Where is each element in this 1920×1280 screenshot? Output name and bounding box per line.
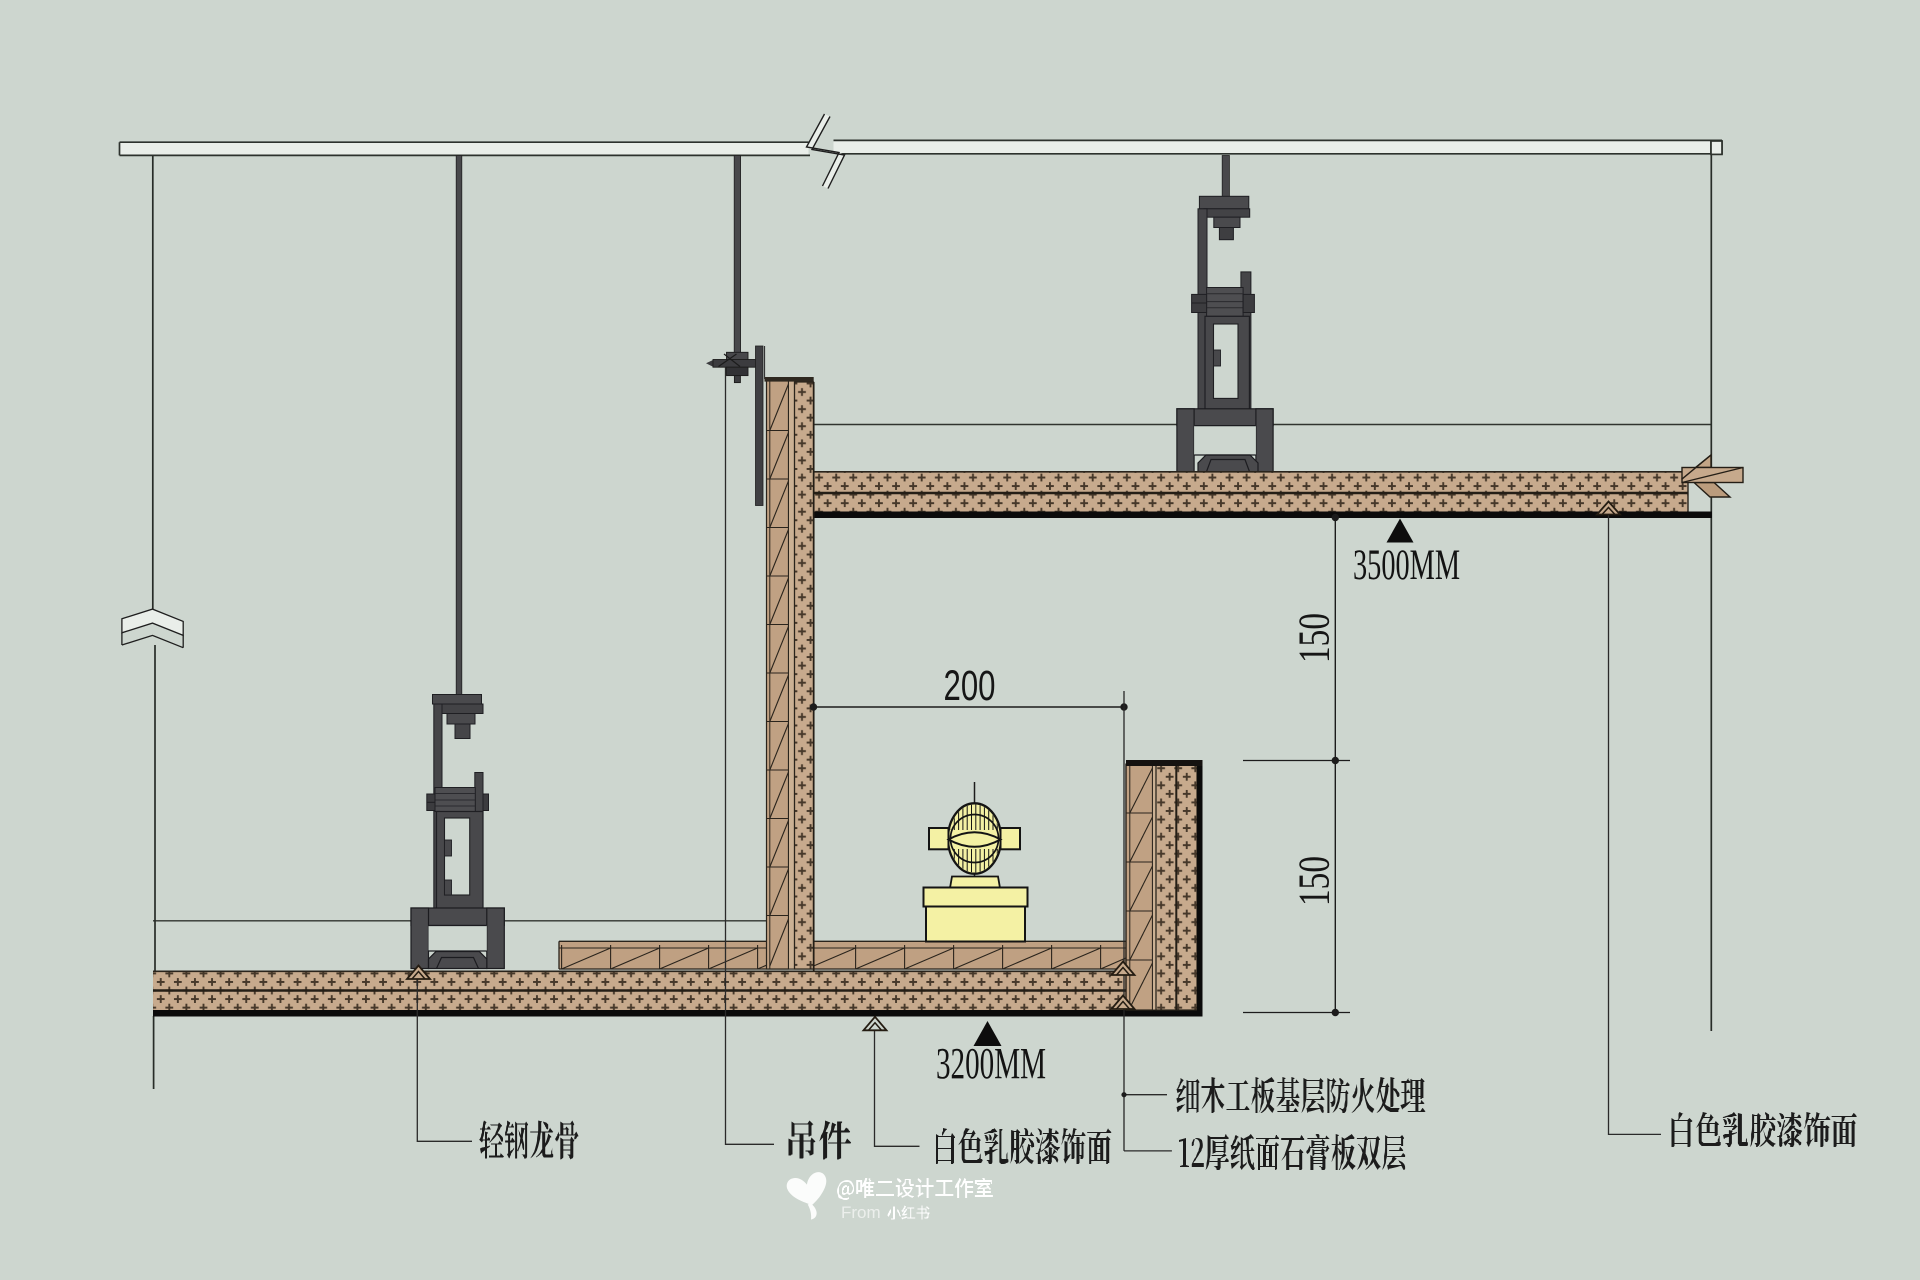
svg-text:3500MM: 3500MM: [1353, 541, 1460, 589]
svg-text:3200MM: 3200MM: [936, 1039, 1046, 1088]
svg-text:200: 200: [944, 662, 996, 710]
svg-text:150: 150: [1290, 856, 1339, 906]
svg-text:150: 150: [1290, 613, 1339, 663]
svg-text:From: From: [841, 1203, 881, 1222]
